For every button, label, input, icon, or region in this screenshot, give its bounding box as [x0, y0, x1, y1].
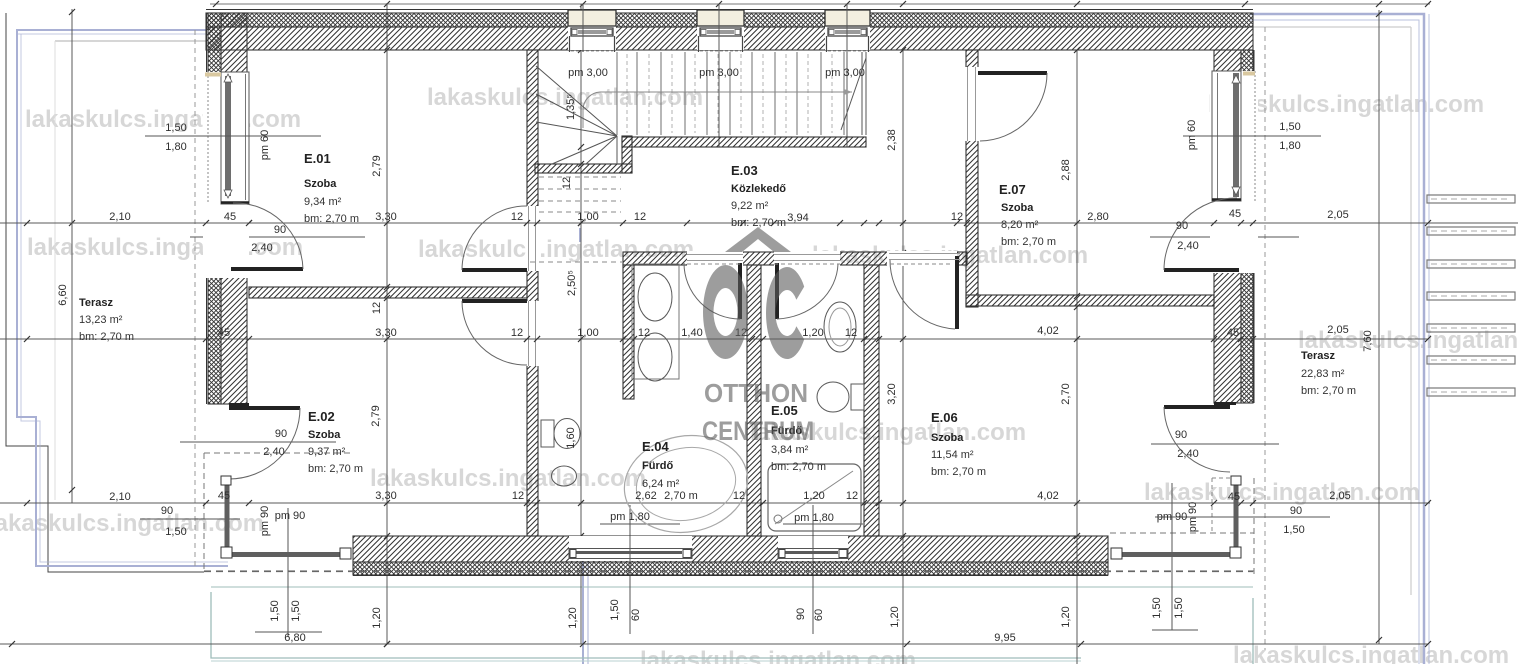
svg-text:12: 12	[733, 490, 745, 502]
svg-text:3,20: 3,20	[886, 383, 898, 404]
svg-text:bm: 2,70 m: bm: 2,70 m	[731, 217, 786, 229]
svg-text:90: 90	[275, 428, 287, 440]
svg-text:12: 12	[371, 302, 383, 314]
svg-text:1,20: 1,20	[1060, 606, 1072, 627]
svg-text:bm: 2,70 m: bm: 2,70 m	[1301, 385, 1356, 397]
svg-text:2,70 m: 2,70 m	[664, 490, 698, 502]
svg-text:9,95: 9,95	[994, 632, 1015, 644]
svg-text:1,50: 1,50	[165, 122, 186, 134]
svg-text:12: 12	[511, 211, 523, 223]
svg-text:2,79: 2,79	[371, 155, 383, 176]
svg-text:12: 12	[634, 211, 646, 223]
svg-text:bm: 2,70 m: bm: 2,70 m	[79, 331, 134, 343]
svg-text:E.01: E.01	[304, 151, 331, 166]
svg-text:lakaskulcs.ingatlan.com: lakaskulcs.ingatlan.com	[25, 106, 301, 133]
svg-text:2,88: 2,88	[1060, 159, 1072, 180]
svg-text:90: 90	[274, 224, 286, 236]
svg-text:2,40: 2,40	[1177, 448, 1198, 460]
svg-text:1,50: 1,50	[1283, 524, 1304, 536]
svg-text:1,00: 1,00	[577, 327, 598, 339]
svg-text:1,80: 1,80	[1279, 140, 1300, 152]
svg-text:E.07: E.07	[999, 182, 1026, 197]
svg-text:3,30: 3,30	[375, 327, 396, 339]
svg-text:lakaskulcs.ingatlan.com: lakaskulcs.ingatlan.com	[370, 465, 646, 492]
svg-text:2,40: 2,40	[263, 446, 284, 458]
svg-text:1,80: 1,80	[165, 141, 186, 153]
svg-text:bm: 2,70 m: bm: 2,70 m	[304, 213, 359, 225]
svg-text:9,22 m²: 9,22 m²	[731, 200, 769, 212]
svg-text:1,50: 1,50	[1279, 121, 1300, 133]
svg-text:2,62: 2,62	[635, 490, 656, 502]
svg-text:3,30: 3,30	[375, 211, 396, 223]
svg-text:90: 90	[1290, 505, 1302, 517]
svg-text:1,50: 1,50	[269, 600, 281, 621]
svg-text:3,94: 3,94	[787, 212, 808, 224]
svg-text:2,80: 2,80	[1087, 211, 1108, 223]
svg-text:13,23 m²: 13,23 m²	[79, 314, 123, 326]
svg-text:Terasz: Terasz	[1301, 350, 1336, 362]
svg-text:1,00: 1,00	[577, 211, 598, 223]
svg-text:pm 90: pm 90	[275, 510, 306, 522]
svg-text:pm 3,00: pm 3,00	[699, 67, 739, 79]
svg-text:2,40: 2,40	[1177, 240, 1198, 252]
svg-text:90: 90	[1175, 429, 1187, 441]
svg-text:1,20: 1,20	[803, 490, 824, 502]
svg-text:pm 90: pm 90	[259, 506, 271, 537]
svg-text:E.02: E.02	[308, 409, 335, 424]
svg-text:pm 1,80: pm 1,80	[794, 512, 834, 524]
svg-text:Szoba: Szoba	[1001, 202, 1034, 214]
svg-text:bm: 2,70 m: bm: 2,70 m	[931, 466, 986, 478]
svg-text:1,35⁵: 1,35⁵	[565, 94, 577, 120]
svg-text:9,37 m²: 9,37 m²	[308, 446, 346, 458]
svg-text:Fürdő: Fürdő	[642, 460, 673, 472]
svg-text:12: 12	[846, 490, 858, 502]
svg-text:E.06: E.06	[931, 410, 958, 425]
svg-text:Közlekedő: Közlekedő	[731, 183, 786, 195]
svg-text:1,20: 1,20	[889, 606, 901, 627]
svg-text:12: 12	[512, 490, 524, 502]
svg-text:pm 90: pm 90	[1187, 502, 1199, 533]
svg-text:2,70: 2,70	[1060, 383, 1072, 404]
svg-text:1,40: 1,40	[681, 327, 702, 339]
svg-text:8,20 m²: 8,20 m²	[1001, 219, 1039, 231]
svg-text:12: 12	[511, 327, 523, 339]
svg-text:9,34 m²: 9,34 m²	[304, 196, 342, 208]
svg-text:E.04: E.04	[642, 439, 670, 454]
svg-text:2,40: 2,40	[251, 242, 272, 254]
svg-text:2,05: 2,05	[1327, 209, 1348, 221]
svg-text:E.03: E.03	[731, 163, 758, 178]
svg-text:pm 3,00: pm 3,00	[825, 67, 865, 79]
svg-text:Szoba: Szoba	[931, 432, 964, 444]
svg-text:45: 45	[224, 211, 236, 223]
svg-text:1,60: 1,60	[565, 427, 577, 448]
svg-text:90: 90	[1176, 220, 1188, 232]
svg-text:pm 60: pm 60	[1186, 120, 1198, 151]
svg-text:60: 60	[813, 609, 825, 621]
svg-text:11,54 m²: 11,54 m²	[931, 449, 974, 461]
svg-text:12: 12	[561, 177, 573, 189]
svg-text:2,05: 2,05	[1329, 490, 1350, 502]
svg-text:Szoba: Szoba	[308, 429, 341, 441]
svg-text:2,10: 2,10	[109, 491, 130, 503]
svg-text:1,20: 1,20	[802, 327, 823, 339]
svg-text:6,80: 6,80	[284, 632, 305, 644]
svg-text:2,05: 2,05	[1327, 324, 1348, 336]
svg-text:90: 90	[795, 608, 807, 620]
svg-text:12: 12	[845, 327, 857, 339]
svg-text:1,20: 1,20	[567, 607, 579, 628]
svg-text:bm: 2,70 m: bm: 2,70 m	[308, 463, 363, 475]
svg-text:1,50: 1,50	[1151, 597, 1163, 618]
svg-text:Terasz: Terasz	[79, 297, 114, 309]
svg-text:45: 45	[1227, 327, 1239, 339]
svg-text:lakaskulcs.ingatlan.com: lakaskulcs.ingatlan.com	[1233, 642, 1509, 664]
svg-text:pm 3,00: pm 3,00	[568, 67, 608, 79]
svg-text:bm: 2,70 m: bm: 2,70 m	[771, 461, 826, 473]
svg-text:45: 45	[218, 327, 230, 339]
svg-text:2,50⁵: 2,50⁵	[566, 270, 578, 296]
svg-text:7,60: 7,60	[1362, 330, 1374, 351]
svg-text:2,10: 2,10	[109, 211, 130, 223]
svg-text:1,50: 1,50	[1173, 597, 1185, 618]
svg-text:2,79: 2,79	[370, 405, 382, 426]
svg-text:3,30: 3,30	[375, 490, 396, 502]
svg-text:4,02: 4,02	[1037, 490, 1058, 502]
svg-text:CENTRUM: CENTRUM	[702, 416, 814, 446]
svg-text:2,38: 2,38	[886, 129, 898, 150]
svg-text:1,20: 1,20	[371, 607, 383, 628]
svg-text:4,02: 4,02	[1037, 325, 1058, 337]
svg-text:bm: 2,70 m: bm: 2,70 m	[1001, 236, 1056, 248]
svg-text:60: 60	[630, 609, 642, 621]
svg-text:1,50: 1,50	[609, 599, 621, 620]
svg-text:45: 45	[218, 490, 230, 502]
svg-text:Szoba: Szoba	[304, 178, 337, 190]
svg-text:12: 12	[638, 327, 650, 339]
svg-text:6,60: 6,60	[57, 284, 69, 305]
svg-text:pm 90: pm 90	[1157, 511, 1188, 523]
svg-text:22,83 m²: 22,83 m²	[1301, 368, 1345, 380]
svg-text:1,50: 1,50	[290, 600, 302, 621]
svg-text:45: 45	[1229, 208, 1241, 220]
svg-text:OTTHON: OTTHON	[704, 378, 808, 408]
svg-text:pm 60: pm 60	[259, 130, 271, 161]
svg-text:45: 45	[1228, 491, 1240, 503]
svg-text:6,24 m²: 6,24 m²	[642, 478, 680, 490]
svg-text:12: 12	[951, 211, 963, 223]
svg-text:1,50: 1,50	[165, 526, 186, 538]
svg-text:pm 1,80: pm 1,80	[610, 511, 650, 523]
svg-text:90: 90	[161, 505, 173, 517]
